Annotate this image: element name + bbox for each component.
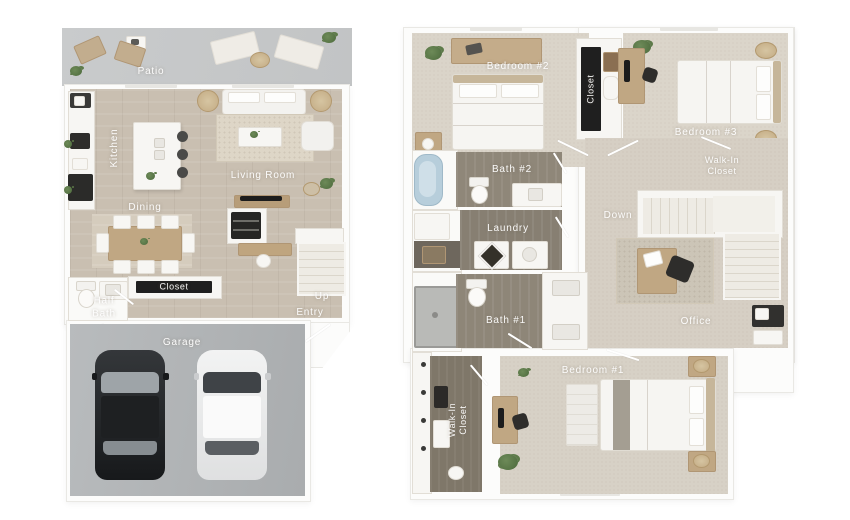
sink-basin (552, 280, 580, 296)
label-bedroom1: Bedroom #1 (562, 365, 624, 378)
label-bedroom3: Bedroom #3 (675, 127, 737, 140)
throw-blanket (613, 380, 630, 450)
laundry-basket (422, 246, 446, 264)
label-down: Down (604, 210, 633, 223)
pillow (756, 66, 771, 92)
staircase-down-lower (723, 232, 781, 300)
side-cabinet (753, 330, 783, 345)
blanket-fold (453, 103, 543, 104)
headboard (453, 75, 543, 83)
wall-hook (421, 390, 426, 395)
label-bath1: Bath #1 (486, 315, 526, 328)
staircase-down-upper (641, 196, 717, 236)
shower-drain (432, 312, 438, 318)
label-closet-f2: Closet (585, 74, 596, 103)
label-bath2: Bath #2 (492, 164, 532, 177)
bed (452, 74, 544, 150)
pillow (689, 418, 704, 446)
printer (755, 308, 769, 320)
closet-stool (448, 466, 464, 480)
blanket-fold (453, 125, 543, 126)
utility-sink (414, 213, 450, 240)
pillow (689, 386, 704, 414)
label-office: Office (681, 316, 712, 329)
pillow (501, 84, 539, 98)
blanket-fold (647, 380, 648, 450)
window (660, 27, 718, 31)
label-laundry: Laundry (487, 223, 529, 236)
blanket-fold (706, 61, 707, 123)
pillow (459, 84, 497, 98)
monitor (498, 408, 504, 428)
window (470, 27, 522, 31)
plant (425, 46, 442, 60)
floor-plan-image: Patio Kitchen Living Room Dining Closet … (0, 0, 850, 520)
plant (498, 454, 518, 470)
label-bedroom2: Bedroom #2 (487, 61, 549, 74)
stair-landing (713, 196, 775, 232)
sink-basin (528, 188, 543, 201)
rattan-stool (755, 42, 777, 59)
hanging-clothes (603, 52, 619, 72)
pillow (756, 94, 771, 120)
label-walkin-closet-b: Walk-In Closet (447, 392, 470, 448)
bed (677, 60, 782, 124)
lamp (422, 138, 434, 150)
toilet-bowl (471, 185, 488, 204)
toilet-bowl (468, 287, 486, 307)
label-walkin-closet-a: Walk-In Closet (694, 155, 750, 178)
second-floor-plan: Bedroom #2 Closet Bedroom #3 Bath #2 Wal… (0, 0, 850, 520)
wall-hook (421, 446, 426, 451)
sink-basin (552, 324, 580, 340)
dryer-door (522, 247, 537, 262)
nightstand-tray (693, 359, 710, 373)
blanket-fold (730, 61, 731, 123)
bathtub-basin (419, 161, 436, 197)
closet-hook-wall (412, 352, 432, 494)
wall-hook (421, 362, 426, 367)
wall-hook (421, 418, 426, 423)
plant (518, 368, 529, 377)
headboard (706, 378, 715, 452)
bed-bench (566, 384, 598, 446)
bed (600, 379, 716, 451)
closet-fixture (603, 76, 619, 100)
nightstand-tray (693, 454, 710, 468)
headboard (773, 61, 781, 123)
desk (618, 48, 645, 104)
monitor (624, 60, 630, 82)
